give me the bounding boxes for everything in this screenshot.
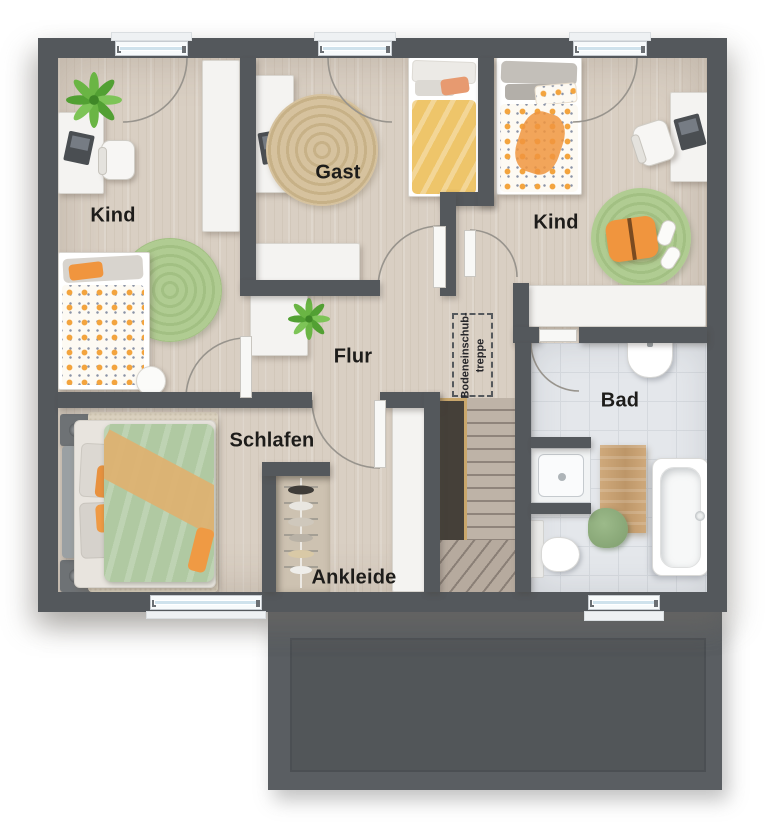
window [115, 41, 188, 56]
office-chair [101, 140, 135, 180]
room-label-kind-right: Kind [533, 212, 578, 235]
wall-gast-kind2 [478, 58, 494, 206]
window-sill [111, 32, 192, 41]
room-label-gast: Gast [315, 162, 360, 185]
stair-treads [467, 398, 515, 540]
door-leaf-schlafen [374, 400, 386, 468]
bed [496, 57, 582, 195]
door-leaf-kind-left [240, 336, 252, 398]
wall-stairwell-left [424, 392, 440, 592]
potted-plant [288, 298, 330, 340]
duvet [62, 285, 144, 385]
laptop-screen [70, 135, 90, 151]
wall-closet-niche-h [262, 462, 330, 476]
bathtub [652, 458, 709, 576]
attic-ladder-outline: Bodeneinschub- treppe [452, 313, 493, 397]
sideboard [528, 285, 706, 327]
window-glass [154, 600, 258, 605]
duvet [500, 104, 578, 192]
window-glass [592, 600, 656, 605]
wall-schlafen-top-a [58, 392, 312, 408]
cushion-strap [627, 218, 637, 260]
attic-ladder-label-line2: treppe [473, 338, 487, 372]
bed-double [62, 418, 216, 588]
throw-blanket [104, 429, 214, 540]
window [573, 41, 647, 56]
laptop-screen [678, 118, 699, 135]
room-label-schlafen: Schlafen [230, 430, 315, 453]
bath-plant [588, 508, 628, 548]
door-leaf-gast [433, 226, 446, 288]
wall-closet-niche-v [262, 468, 276, 592]
shower [531, 448, 591, 503]
outer-wall-left [38, 38, 58, 612]
laptop [673, 113, 706, 151]
wardrobe [392, 403, 426, 592]
wall-gast-bottom [240, 280, 380, 296]
window-sill [314, 32, 396, 41]
attic-ladder-label: Bodeneinschub- treppe [452, 313, 493, 397]
pillow-accent [534, 82, 578, 106]
window-glass [577, 46, 643, 51]
stair-winders [440, 540, 515, 592]
window-sill [584, 611, 664, 621]
wall-shower-bottom [531, 503, 591, 514]
window-glass [322, 46, 388, 51]
duvet [412, 100, 476, 194]
toilet-bowl [541, 537, 580, 572]
tub-faucet [695, 511, 705, 521]
window [150, 595, 262, 610]
blanket-accent [187, 526, 214, 573]
staircase [440, 398, 515, 592]
attic-ladder-label-line1: Bodeneinschub- [458, 312, 472, 398]
wall-bad-top-right [579, 327, 707, 343]
wardrobe [202, 60, 240, 232]
room-label-ankleide: Ankleide [312, 567, 397, 590]
shower-drain [558, 473, 566, 481]
stairwell-void [440, 398, 467, 540]
window [318, 41, 392, 56]
chair-back [98, 147, 107, 176]
desk [670, 92, 708, 182]
wall-kind-gast [240, 58, 256, 290]
window-sill [569, 32, 651, 41]
duvet-fold [509, 107, 570, 180]
potted-plant [66, 72, 122, 128]
duvet [104, 424, 214, 582]
pillow-accent [440, 76, 470, 96]
door-leaf-kind-right [464, 230, 476, 277]
floor-plan: Bodeneinschub- treppe Kind [0, 0, 775, 840]
window [588, 595, 660, 610]
bed [58, 252, 150, 390]
wall-shower-top [531, 437, 591, 448]
extension-inner-panel [290, 638, 706, 772]
room-label-kind-left: Kind [90, 205, 135, 228]
room-label-bad: Bad [601, 390, 639, 413]
floor-cushion [604, 215, 659, 264]
laptop [63, 131, 95, 166]
door-leaf-bad [539, 329, 577, 342]
toilet [529, 520, 579, 576]
sideboard [250, 243, 360, 283]
room-label-flur: Flur [334, 346, 373, 369]
wall-bad-left [515, 343, 531, 592]
window-sill [146, 611, 266, 619]
window-glass [119, 46, 184, 51]
wall-bad-top-left [513, 327, 539, 343]
outer-wall-right [707, 38, 727, 612]
round-rug [266, 94, 378, 206]
pillow [501, 61, 578, 86]
bed [408, 57, 480, 197]
